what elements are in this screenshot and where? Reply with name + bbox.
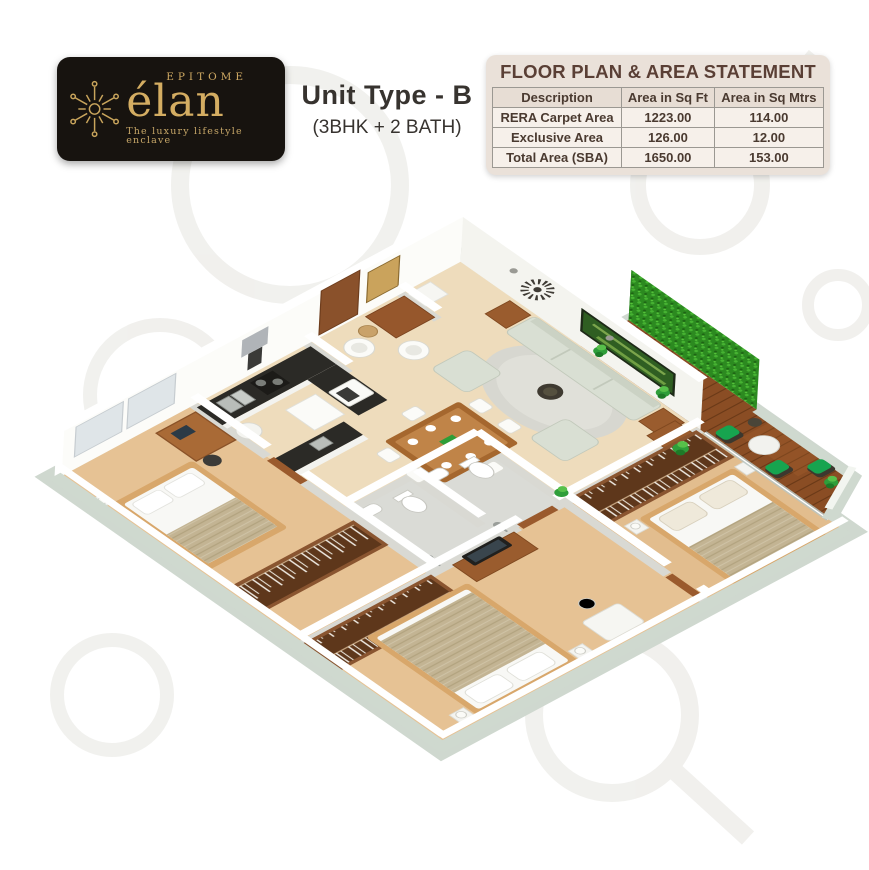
area-statement-table: Description Area in Sq Ft Area in Sq Mtr…: [492, 87, 824, 168]
row-sqmtrs: 114.00: [714, 108, 823, 128]
row-description: Exclusive Area: [493, 128, 622, 148]
table-row: Exclusive Area 126.00 12.00: [493, 128, 824, 148]
col-header-sqft: Area in Sq Ft: [622, 88, 715, 108]
brand-tagline: The luxury lifestyle enclave: [126, 127, 275, 146]
row-sqft: 1650.00: [622, 148, 715, 168]
row-sqmtrs: 153.00: [714, 148, 823, 168]
row-sqmtrs: 12.00: [714, 128, 823, 148]
table-header-row: Description Area in Sq Ft Area in Sq Mtr…: [493, 88, 824, 108]
row-sqft: 126.00: [622, 128, 715, 148]
unit-type-subtitle: (3BHK + 2 BATH): [287, 117, 487, 139]
row-description: Total Area (SBA): [493, 148, 622, 168]
row-description: RERA Carpet Area: [493, 108, 622, 128]
table-row: Total Area (SBA) 1650.00 153.00: [493, 148, 824, 168]
area-statement-panel: FLOOR PLAN & AREA STATEMENT Description …: [486, 55, 830, 175]
brand-logo-card: EPITOME élan The luxury lifestyle enclav…: [57, 57, 285, 161]
brand-name: élan: [126, 80, 275, 124]
unit-type-title: Unit Type - B: [287, 80, 487, 111]
col-header-description: Description: [493, 88, 622, 108]
area-statement-title: FLOOR PLAN & AREA STATEMENT: [492, 61, 824, 83]
floor-plan-page: { "logo": { "brand_prefix": "EPITOME", "…: [0, 0, 869, 870]
row-sqft: 1223.00: [622, 108, 715, 128]
unit-type-block: Unit Type - B (3BHK + 2 BATH): [287, 80, 487, 139]
table-row: RERA Carpet Area 1223.00 114.00: [493, 108, 824, 128]
col-header-sqmtrs: Area in Sq Mtrs: [714, 88, 823, 108]
elan-starburst-icon: [65, 76, 124, 142]
